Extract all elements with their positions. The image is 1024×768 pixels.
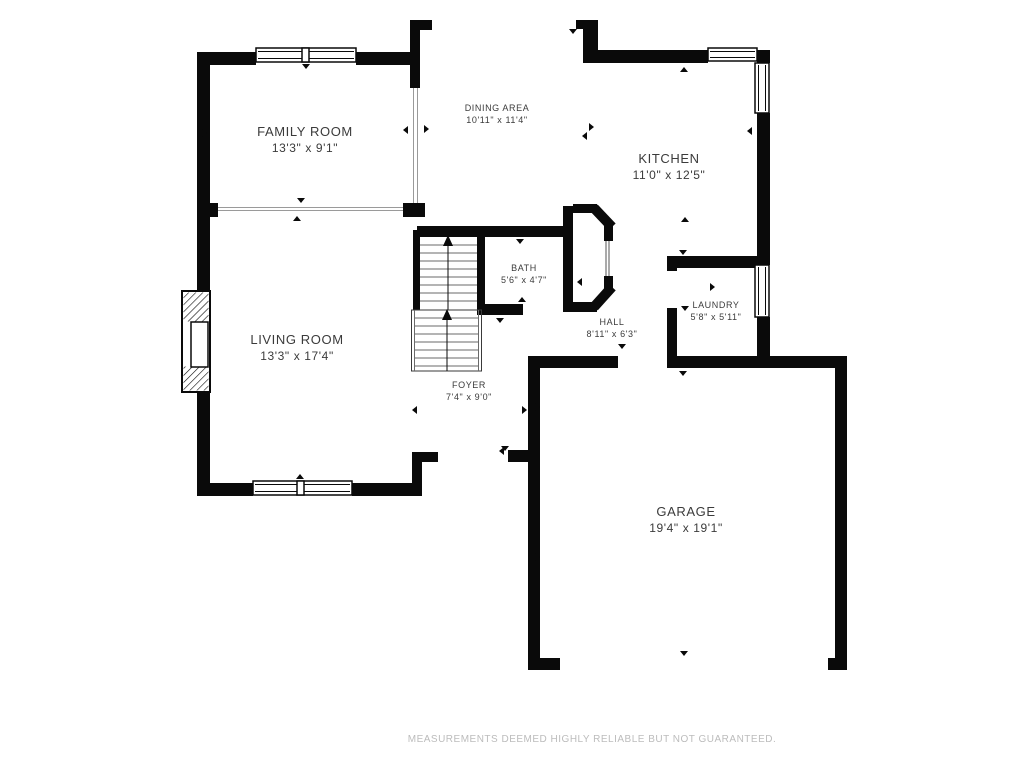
room-name: FOYER	[446, 380, 492, 390]
staircase	[412, 235, 482, 371]
room-label-foyer: FOYER 7'4" x 9'0"	[446, 380, 492, 402]
room-label-dining-area: DINING AREA 10'11" x 11'4"	[465, 103, 530, 125]
room-name: FAMILY ROOM	[257, 124, 353, 139]
laundry-window	[755, 265, 769, 317]
room-dimensions: 13'3" x 17'4"	[250, 349, 343, 363]
room-dimensions: 5'6" x 4'7"	[501, 275, 547, 285]
room-label-bath: BATH 5'6" x 4'7"	[501, 263, 547, 285]
room-dimensions: 8'11" x 6'3"	[587, 329, 638, 339]
floorplan-page: FAMILY ROOM 13'3" x 9'1" DINING AREA 10'…	[0, 0, 1024, 768]
room-name: LIVING ROOM	[250, 332, 343, 347]
disclaimer-text: MEASUREMENTS DEEMED HIGHLY RELIABLE BUT …	[408, 734, 777, 745]
room-label-garage: GARAGE 19'4" x 19'1"	[649, 504, 723, 535]
room-label-hall: HALL 8'11" x 6'3"	[587, 317, 638, 339]
family-room-window	[256, 48, 356, 69]
kitchen-right-window	[755, 63, 769, 113]
room-dimensions: 19'4" x 19'1"	[649, 521, 723, 535]
living-room-window	[253, 474, 352, 495]
room-name: HALL	[587, 317, 638, 327]
kitchen-top-window	[708, 48, 757, 61]
room-dimensions: 7'4" x 9'0"	[446, 392, 492, 402]
room-dimensions: 13'3" x 9'1"	[257, 141, 353, 155]
room-dimensions: 10'11" x 11'4"	[465, 115, 530, 125]
room-name: KITCHEN	[633, 151, 706, 166]
room-name: BATH	[501, 263, 547, 273]
room-label-laundry: LAUNDRY 5'8" x 5'11"	[691, 300, 742, 322]
room-name: DINING AREA	[465, 103, 530, 113]
room-dimensions: 11'0" x 12'5"	[633, 168, 706, 182]
room-dimensions: 5'8" x 5'11"	[691, 312, 742, 322]
room-name: LAUNDRY	[691, 300, 742, 310]
room-label-kitchen: KITCHEN 11'0" x 12'5"	[633, 151, 706, 182]
room-name: GARAGE	[649, 504, 723, 519]
room-label-living-room: LIVING ROOM 13'3" x 17'4"	[250, 332, 343, 363]
room-label-family-room: FAMILY ROOM 13'3" x 9'1"	[257, 124, 353, 155]
fireplace	[182, 291, 210, 392]
